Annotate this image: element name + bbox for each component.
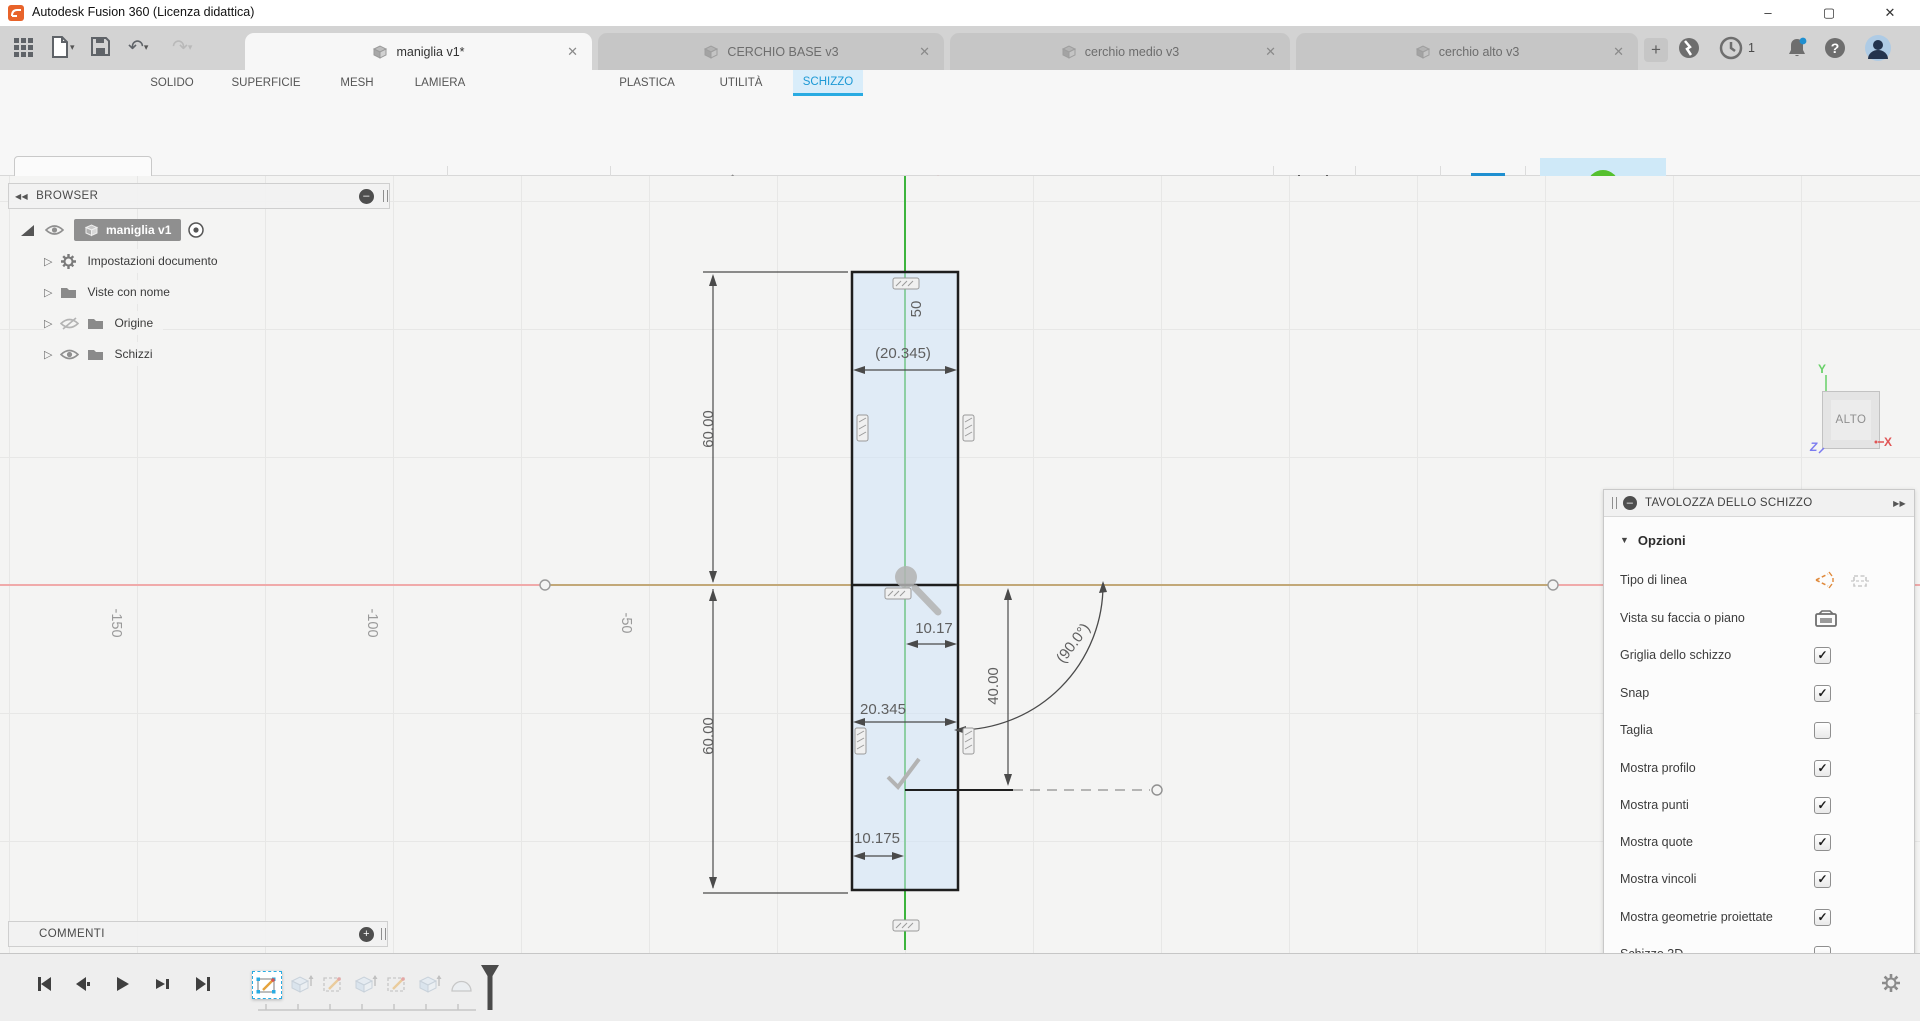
- palette-row-vista-su-faccia: Vista su faccia o piano: [1620, 608, 1902, 628]
- timeline-item-extrude[interactable]: [415, 971, 443, 997]
- activate-radio-icon[interactable]: [187, 221, 205, 239]
- ribbon-tab-utilita[interactable]: UTILITÀ: [720, 70, 763, 96]
- tab-label: CERCHIO BASE v3: [727, 45, 838, 59]
- dim-10-175[interactable]: 10.175: [854, 830, 900, 847]
- palette-row-tipo-di-linea: Tipo di linea: [1620, 570, 1902, 590]
- timeline-bar: [0, 953, 1920, 1021]
- new-tab-button[interactable]: +: [1644, 38, 1668, 62]
- ribbon: PROGETTO▾ SOLIDO SUPERFICIE MESH LAMIERA…: [0, 70, 1920, 176]
- browser-title: BROWSER: [36, 190, 98, 202]
- redo-caret[interactable]: ▾: [188, 42, 193, 53]
- checkbox-snap[interactable]: ✓: [1814, 685, 1831, 702]
- timeline-item-fillet[interactable]: [447, 971, 475, 997]
- extensions-icon[interactable]: [1676, 35, 1702, 61]
- dim-20-345[interactable]: 20.345: [860, 701, 906, 718]
- ribbon-tab-plastica[interactable]: PLASTICA: [619, 70, 675, 96]
- dim-40[interactable]: 40.00: [985, 667, 1002, 705]
- row-label: Mostra quote: [1620, 835, 1693, 849]
- row-label: Mostra profilo: [1620, 761, 1696, 775]
- document-icon: [372, 44, 388, 59]
- fusion-app-icon: [8, 5, 24, 21]
- row-label: Snap: [1620, 686, 1649, 700]
- dim-50[interactable]: 50: [908, 301, 925, 318]
- root-component-label: maniglia v1: [106, 223, 171, 237]
- folder-icon: [60, 286, 77, 299]
- axis-label--150: -150: [108, 608, 124, 637]
- axis-label--100: -100: [364, 608, 380, 637]
- palette-row-mostra-punti: Mostra punti ✓: [1620, 795, 1902, 815]
- dim-60-top[interactable]: 60.00: [700, 410, 717, 448]
- checkbox-griglia[interactable]: ✓: [1814, 647, 1831, 664]
- browser-grip[interactable]: [383, 190, 388, 202]
- palette-header[interactable]: – TAVOLOZZA DELLO SCHIZZO ▶▶: [1604, 490, 1914, 517]
- notifications-bell-icon[interactable]: [1784, 35, 1810, 61]
- palette-collapse-icon[interactable]: ▶▶: [1893, 499, 1906, 508]
- job-count: 1: [1748, 41, 1755, 55]
- tab-cerchio-medio[interactable]: cerchio medio v3 ✕: [950, 33, 1290, 70]
- tab-close-icon[interactable]: ✕: [919, 44, 930, 60]
- palette-row-taglia: Taglia: [1620, 720, 1902, 740]
- palette-title: TAVOLOZZA DELLO SCHIZZO: [1645, 497, 1813, 509]
- document-icon: [1061, 44, 1077, 59]
- save-icon[interactable]: [90, 36, 111, 57]
- browser-item-impostazioni[interactable]: ▷ Impostazioni documento: [44, 249, 228, 273]
- tab-cerchio-alto[interactable]: cerchio alto v3 ✕: [1296, 33, 1638, 70]
- help-icon[interactable]: ?: [1822, 35, 1848, 61]
- browser-collapse-icon[interactable]: ◀◀: [15, 192, 28, 201]
- browser-item-label: Impostazioni documento: [87, 254, 217, 268]
- timeline-play-button[interactable]: [112, 974, 132, 994]
- row-label: Tipo di linea: [1620, 573, 1687, 587]
- browser-item-label: Origine: [114, 316, 153, 330]
- axis-label--50: -50: [618, 613, 634, 634]
- folder-icon: [87, 348, 104, 361]
- browser-panel-header[interactable]: ◀◀ BROWSER –: [8, 183, 390, 209]
- section-caret-icon[interactable]: ▼: [1620, 535, 1629, 545]
- row-label: Mostra punti: [1620, 798, 1689, 812]
- tab-close-icon[interactable]: ✕: [1265, 44, 1276, 60]
- timeline-go-to-start-button[interactable]: [34, 974, 54, 994]
- palette-row-mostra-vincoli: Mostra vincoli ✓: [1620, 869, 1902, 889]
- ribbon-tab-lamiera[interactable]: LAMIERA: [415, 70, 466, 96]
- tab-close-icon[interactable]: ✕: [567, 44, 578, 60]
- maximize-button[interactable]: ▢: [1814, 3, 1844, 23]
- document-tab-bar: ▾ ↶▾ ↷▾ maniglia v1* ✕ CERCHIO BASE v3 ✕…: [0, 26, 1920, 70]
- ribbon-tab-solido[interactable]: SOLIDO: [150, 70, 193, 96]
- timeline-item-sketch[interactable]: [383, 971, 411, 997]
- timeline-step-back-button[interactable]: [72, 974, 92, 994]
- palette-grip[interactable]: [1612, 497, 1617, 509]
- visibility-eye-icon[interactable]: [45, 224, 64, 236]
- comments-title: COMMENTI: [39, 928, 105, 940]
- checkbox-mostra-profilo[interactable]: ✓: [1814, 760, 1831, 777]
- timeline-step-forward-button[interactable]: [152, 974, 172, 994]
- tab-close-icon[interactable]: ✕: [1613, 44, 1624, 60]
- timeline-settings-gear-icon[interactable]: [1880, 972, 1902, 994]
- minimize-button[interactable]: –: [1753, 3, 1783, 23]
- dim-60-bottom[interactable]: 60.00: [700, 717, 717, 755]
- palette-row-mostra-quote: Mostra quote ✓: [1620, 832, 1902, 852]
- visibility-off-eye-icon[interactable]: [60, 317, 79, 330]
- app-grid-icon[interactable]: [12, 36, 34, 58]
- job-status-icon[interactable]: 1: [1718, 35, 1755, 61]
- collapsed-arrow-icon[interactable]: ▷: [44, 317, 52, 330]
- timeline-item-sketch-current[interactable]: [252, 971, 282, 999]
- gear-icon: [60, 253, 77, 270]
- timeline-playhead[interactable]: [480, 964, 502, 1012]
- look-at-icon[interactable]: [1814, 608, 1838, 628]
- collapsed-arrow-icon[interactable]: ▷: [44, 255, 52, 268]
- comments-add-icon[interactable]: +: [359, 927, 374, 942]
- palette-row-geometrie-proiettate: Mostra geometrie proiettate ✓: [1620, 907, 1902, 927]
- browser-item-viste[interactable]: ▷ Viste con nome: [44, 280, 180, 304]
- dim-20-345-ref[interactable]: (20.345): [875, 345, 931, 362]
- row-label: Vista su faccia o piano: [1620, 611, 1745, 625]
- tab-label: cerchio alto v3: [1439, 45, 1520, 59]
- svg-text:?: ?: [1831, 40, 1840, 56]
- dim-90[interactable]: (90.0°): [1053, 620, 1094, 666]
- row-label: Mostra geometrie proiettate: [1620, 910, 1773, 924]
- title-bar: Autodesk Fusion 360 (Licenza didattica) …: [0, 0, 1920, 26]
- document-icon: [703, 44, 719, 59]
- sketch-viewport[interactable]: 60.00 60.00 50 (20.345) 10.17 20.345: [0, 176, 1920, 953]
- viewcube-axes: [1815, 371, 1915, 461]
- palette-row-mostra-profilo: Mostra profilo ✓: [1620, 758, 1902, 778]
- undo-caret[interactable]: ▾: [144, 42, 149, 53]
- palette-row-snap: Snap ✓: [1620, 683, 1902, 703]
- centerline-type-icon[interactable]: [1814, 570, 1838, 590]
- timeline-track: [252, 1002, 482, 1012]
- timeline-item-extrude[interactable]: [351, 971, 379, 997]
- comments-panel-header[interactable]: COMMENTI +: [8, 921, 388, 947]
- browser-item-schizzi[interactable]: ▷ Schizzi: [44, 342, 162, 366]
- fusion360-window: Autodesk Fusion 360 (Licenza didattica) …: [0, 0, 1920, 1021]
- checkbox-geometrie-proiettate[interactable]: ✓: [1814, 909, 1831, 926]
- palette-section-opzioni[interactable]: ▼ Opzioni: [1620, 530, 1902, 550]
- window-title: Autodesk Fusion 360 (Licenza didattica): [32, 5, 254, 19]
- sketch-palette: – TAVOLOZZA DELLO SCHIZZO ▶▶ ▼ Opzioni T…: [1603, 489, 1915, 1011]
- expanded-arrow-icon[interactable]: [20, 223, 35, 237]
- visibility-eye-icon[interactable]: [60, 348, 79, 361]
- row-label: Griglia dello schizzo: [1620, 648, 1731, 662]
- document-icon: [1415, 44, 1431, 59]
- checkbox-taglia[interactable]: [1814, 722, 1831, 739]
- ribbon-tab-mesh[interactable]: MESH: [340, 70, 373, 96]
- browser-minimize-icon[interactable]: –: [359, 189, 374, 204]
- browser-item-origine[interactable]: ▷ Origine: [44, 311, 163, 335]
- close-button[interactable]: ✕: [1875, 3, 1905, 23]
- row-label: Mostra vincoli: [1620, 872, 1696, 886]
- row-label: Taglia: [1620, 723, 1653, 737]
- avatar[interactable]: [1864, 34, 1892, 62]
- construction-type-icon[interactable]: [1850, 570, 1872, 590]
- undo-icon[interactable]: ↶▾: [128, 36, 148, 59]
- folder-icon: [87, 317, 104, 330]
- dim-10-17[interactable]: 10.17: [915, 620, 953, 637]
- palette-minimize-icon[interactable]: –: [1623, 496, 1637, 510]
- collapsed-arrow-icon[interactable]: ▷: [44, 286, 52, 299]
- browser-root-row[interactable]: maniglia v1: [20, 218, 215, 242]
- timeline-item-extrude[interactable]: [287, 971, 315, 997]
- checkbox-mostra-quote[interactable]: ✓: [1814, 834, 1831, 851]
- component-cube-icon: [84, 223, 99, 237]
- timeline-item-sketch[interactable]: [319, 971, 347, 997]
- tab-maniglia-v1[interactable]: maniglia v1* ✕: [245, 33, 592, 70]
- ribbon-tab-superficie[interactable]: SUPERFICIE: [231, 70, 300, 96]
- browser-item-label: Schizzi: [114, 347, 152, 361]
- checkbox-mostra-vincoli[interactable]: ✓: [1814, 871, 1831, 888]
- ribbon-tab-schizzo[interactable]: SCHIZZO: [793, 70, 863, 96]
- browser-item-label: Viste con nome: [87, 285, 170, 299]
- palette-row-griglia: Griglia dello schizzo ✓: [1620, 645, 1902, 665]
- tab-label: maniglia v1*: [396, 45, 464, 59]
- root-component-chip[interactable]: maniglia v1: [74, 219, 181, 241]
- file-menu-icon[interactable]: ▾: [50, 36, 75, 58]
- checkbox-mostra-punti[interactable]: ✓: [1814, 797, 1831, 814]
- collapsed-arrow-icon[interactable]: ▷: [44, 348, 52, 361]
- file-menu-caret[interactable]: ▾: [70, 42, 75, 53]
- tab-cerchio-base[interactable]: CERCHIO BASE v3 ✕: [598, 33, 944, 70]
- timeline-go-to-end-button[interactable]: [192, 974, 212, 994]
- redo-icon[interactable]: ↷▾: [172, 36, 192, 59]
- comments-grip[interactable]: [381, 928, 386, 940]
- tab-label: cerchio medio v3: [1085, 45, 1180, 59]
